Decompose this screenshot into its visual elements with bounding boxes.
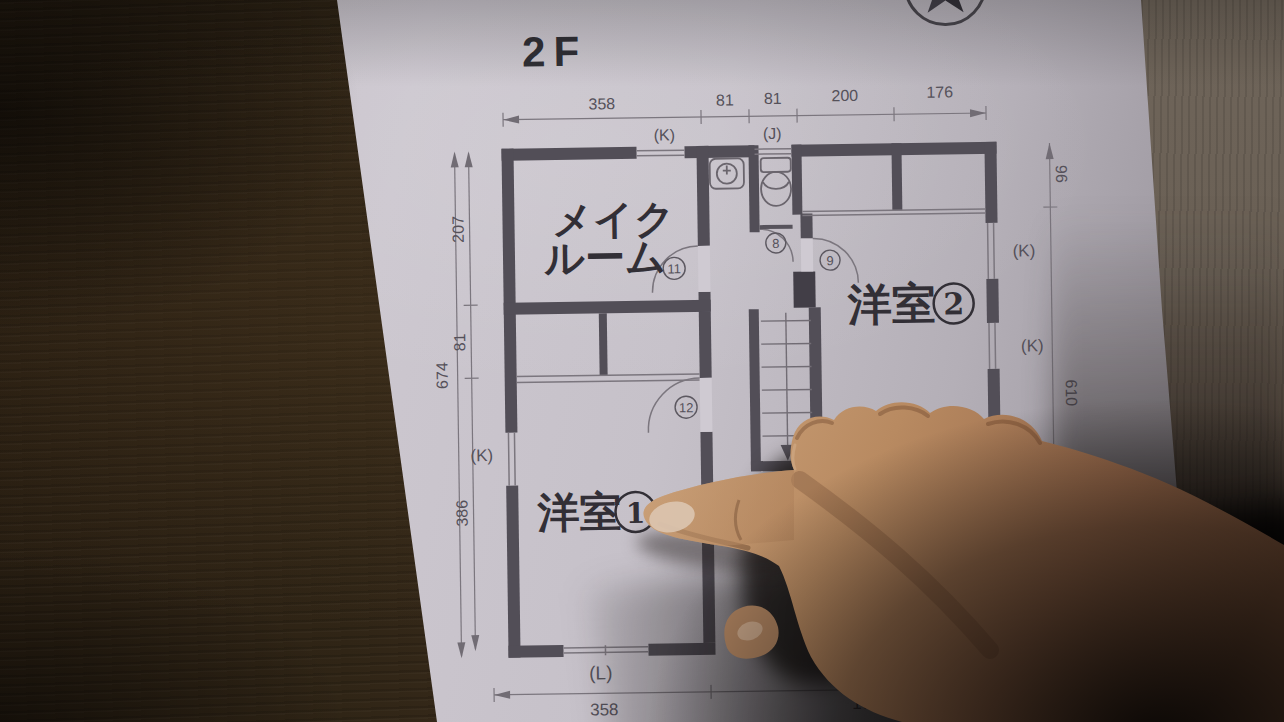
photo-vignette [0,0,1284,722]
photo-scene: 2F [0,0,1284,722]
